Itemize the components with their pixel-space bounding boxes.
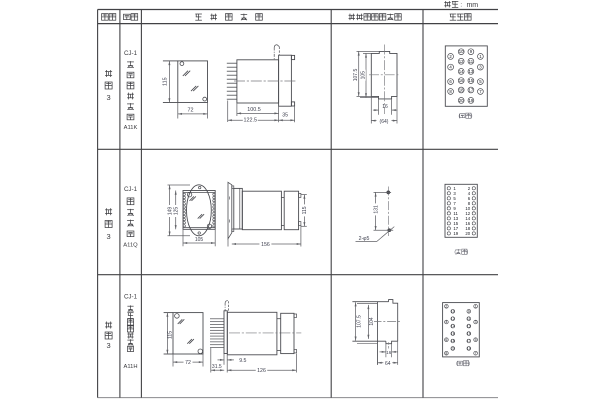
svg-text:8: 8 — [445, 351, 447, 355]
svg-text:115: 115 — [302, 206, 308, 214]
svg-text:5: 5 — [479, 79, 482, 84]
svg-text:(64): (64) — [380, 119, 389, 125]
svg-text:13: 13 — [469, 69, 474, 74]
svg-text:20: 20 — [465, 231, 470, 236]
svg-text:125: 125 — [174, 207, 180, 216]
svg-text:72: 72 — [185, 360, 191, 366]
svg-text:14: 14 — [459, 69, 464, 74]
svg-text:122.5: 122.5 — [244, 118, 258, 124]
svg-text:CJ-1: CJ-1 — [124, 186, 138, 193]
svg-text:19: 19 — [467, 347, 471, 351]
svg-text:10: 10 — [451, 310, 455, 314]
svg-text:156: 156 — [261, 242, 270, 248]
svg-text:CJ-1: CJ-1 — [124, 294, 138, 301]
svg-text:7: 7 — [479, 89, 482, 94]
svg-text:6: 6 — [449, 79, 452, 84]
svg-text:): ) — [471, 114, 473, 120]
svg-text:4: 4 — [449, 65, 452, 70]
svg-text:12: 12 — [459, 59, 464, 64]
svg-text:14: 14 — [451, 324, 455, 328]
svg-text:(: ( — [454, 250, 456, 256]
svg-text:15: 15 — [467, 332, 471, 336]
svg-text:35: 35 — [282, 113, 288, 119]
svg-text:2: 2 — [449, 54, 452, 59]
svg-text:): ) — [468, 361, 470, 367]
svg-text:10: 10 — [459, 49, 464, 54]
svg-text:20: 20 — [459, 98, 464, 103]
svg-text:): ) — [466, 250, 468, 256]
svg-text:16: 16 — [386, 350, 391, 355]
svg-text:7: 7 — [475, 351, 477, 355]
svg-text:20: 20 — [451, 347, 455, 351]
svg-text:11: 11 — [467, 317, 471, 321]
svg-text:19: 19 — [453, 231, 458, 236]
svg-text:105: 105 — [361, 71, 367, 80]
svg-text:5: 5 — [475, 338, 477, 342]
svg-text:4: 4 — [445, 320, 447, 324]
svg-text:72: 72 — [188, 108, 194, 114]
svg-text:1: 1 — [475, 305, 477, 309]
svg-text:17: 17 — [467, 339, 471, 343]
svg-text:16: 16 — [382, 104, 388, 110]
svg-text:107.5: 107.5 — [356, 315, 362, 328]
svg-text:8: 8 — [449, 89, 452, 94]
svg-text::: : — [460, 2, 462, 9]
svg-text:100.5: 100.5 — [247, 107, 261, 113]
svg-text:6: 6 — [445, 338, 447, 342]
svg-text:19: 19 — [469, 98, 474, 103]
svg-text:11: 11 — [469, 59, 474, 64]
svg-text:9: 9 — [468, 310, 470, 314]
svg-text:mm: mm — [466, 2, 478, 9]
svg-text:3: 3 — [479, 65, 482, 70]
svg-text:64: 64 — [385, 361, 391, 367]
svg-text:CJ-1: CJ-1 — [124, 50, 138, 57]
svg-text:3: 3 — [107, 341, 111, 350]
svg-text:18: 18 — [451, 339, 455, 343]
svg-text:2: 2 — [445, 305, 447, 309]
svg-text:31.5: 31.5 — [212, 364, 222, 370]
svg-text:A11H: A11H — [123, 364, 137, 370]
svg-text:1: 1 — [479, 54, 482, 59]
svg-text:149: 149 — [167, 207, 173, 216]
svg-text:A11K: A11K — [124, 125, 138, 131]
svg-text:115: 115 — [163, 77, 169, 86]
svg-text:18: 18 — [459, 88, 464, 93]
svg-text:13: 13 — [467, 324, 471, 328]
svg-text:16: 16 — [451, 332, 455, 336]
svg-text:9.5: 9.5 — [239, 358, 246, 364]
svg-text:15: 15 — [469, 78, 474, 83]
svg-text:115: 115 — [168, 331, 174, 339]
svg-text:3: 3 — [107, 232, 111, 241]
svg-text:104: 104 — [369, 317, 375, 326]
svg-text:131: 131 — [373, 205, 379, 214]
svg-text:3: 3 — [475, 320, 477, 324]
svg-text:12: 12 — [451, 317, 455, 321]
svg-text:17: 17 — [469, 88, 474, 93]
svg-text:105: 105 — [195, 237, 204, 243]
svg-text:A11Q: A11Q — [123, 242, 138, 248]
svg-text:16: 16 — [459, 78, 464, 83]
svg-text:3: 3 — [107, 93, 111, 102]
svg-text:107.5: 107.5 — [353, 69, 359, 82]
svg-text:9: 9 — [470, 49, 473, 54]
svg-text:126: 126 — [257, 368, 266, 374]
